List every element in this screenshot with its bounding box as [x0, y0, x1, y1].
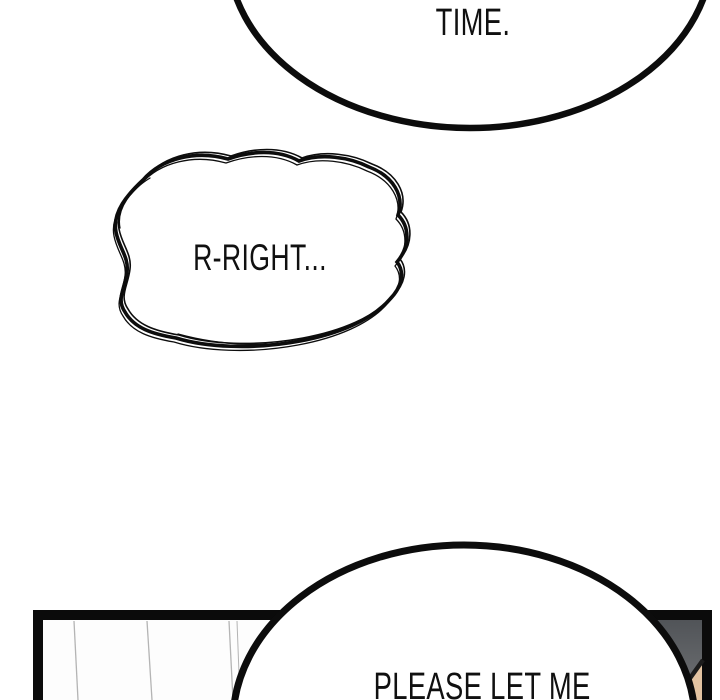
- comic-scene: [0, 0, 720, 700]
- speech-text-top: TIME.: [401, 4, 545, 42]
- speech-text-cloud: R-RIGHT...: [188, 239, 332, 276]
- comic-page: TIME. R-RIGHT... PLEASE LET ME: [0, 0, 720, 700]
- speech-text-bottom: PLEASE LET ME: [374, 668, 547, 700]
